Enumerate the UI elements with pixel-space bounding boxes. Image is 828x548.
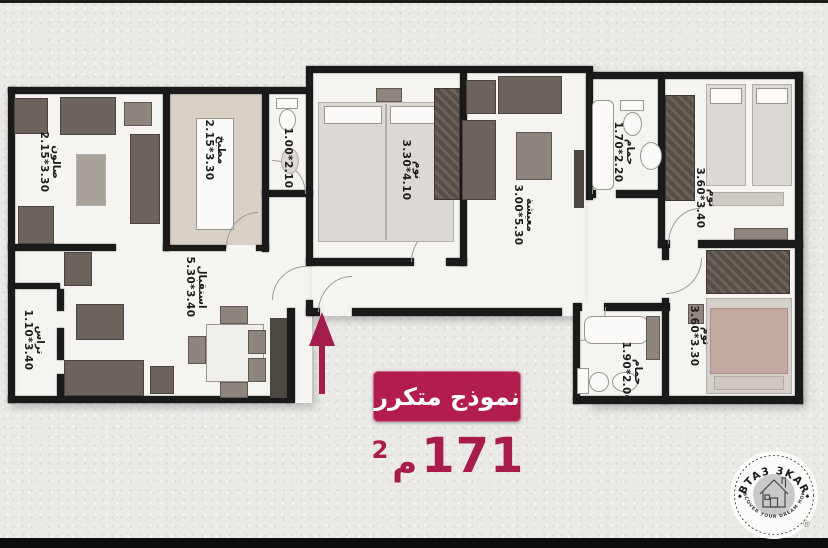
room-dims: 3.00*5.30 xyxy=(512,185,524,246)
wall xyxy=(163,94,170,251)
room-label-living: معيشة 3.00*5.30 xyxy=(512,185,536,246)
room-label-wc: 1.00*2.10 xyxy=(282,128,294,189)
furniture-tv-panel xyxy=(574,150,584,208)
wall xyxy=(57,328,64,360)
room-label-kitchen: مطبخ 2.15*3.30 xyxy=(203,120,227,181)
bathtub-icon xyxy=(592,100,614,190)
furniture-wardrobe xyxy=(706,250,790,294)
furniture-tv-cabinet xyxy=(270,318,287,398)
toilet-icon xyxy=(276,98,298,109)
wall xyxy=(306,66,313,94)
furniture-bed-split xyxy=(385,104,387,240)
wall xyxy=(573,396,803,404)
toilet-icon xyxy=(589,372,609,392)
wall xyxy=(163,245,226,251)
room-name: استقبال xyxy=(196,257,208,318)
wall xyxy=(57,289,64,311)
room-dims: 1.00*2.10 xyxy=(282,128,294,189)
furniture-wardrobe xyxy=(434,88,460,200)
room-label-terrace: تراس 1.10*3.40 xyxy=(22,310,46,371)
room-name: نوم xyxy=(412,140,424,201)
furniture-wardrobe xyxy=(665,95,695,201)
wall xyxy=(588,72,803,79)
area-text: 2 م 171 xyxy=(366,420,530,480)
furniture-ottoman xyxy=(150,366,174,394)
furniture-sofa xyxy=(130,134,160,224)
model-stamp: نموذج متكرر xyxy=(373,371,521,422)
furniture-armchair xyxy=(14,98,48,134)
room-name: تراس xyxy=(34,310,46,371)
wall xyxy=(662,298,669,404)
wall xyxy=(262,94,269,252)
room-label-bedroom3: نوم 3.60*3.30 xyxy=(688,306,712,367)
logo-diamond-right: ◆ xyxy=(806,494,810,500)
wall xyxy=(8,244,116,251)
furniture-sofa xyxy=(64,360,144,396)
room-name: صالون xyxy=(50,132,62,193)
wall xyxy=(306,258,414,266)
entrance-arrow-icon xyxy=(309,312,335,346)
furniture-sofa xyxy=(498,76,562,114)
dining-chair xyxy=(248,330,266,354)
floor-plan-image: صالون 2.15*3.30 مطبخ 2.15*3.30 1.00*2.10… xyxy=(0,0,828,548)
furniture-cabinet xyxy=(64,252,92,286)
bathtub-icon xyxy=(584,316,648,344)
top-border-strip xyxy=(0,0,828,3)
furniture-side-table xyxy=(124,102,152,126)
wall xyxy=(604,303,670,311)
wall xyxy=(698,240,803,248)
wall xyxy=(352,308,562,316)
room-dims: 1.70*2.20 xyxy=(612,122,624,183)
room-name: معيشة xyxy=(524,185,536,246)
room-dims: 3.60*3.30 xyxy=(688,306,700,367)
room-label-reception: استقبال 5.30*3.40 xyxy=(184,257,208,318)
wall xyxy=(8,87,15,403)
wall xyxy=(57,374,64,396)
dining-chair xyxy=(220,306,248,324)
wall xyxy=(287,308,295,403)
dining-chair xyxy=(220,382,248,398)
furniture-rug xyxy=(712,192,784,206)
wall xyxy=(8,87,312,94)
room-dims: 3.30*4.10 xyxy=(400,140,412,201)
sink-icon xyxy=(640,142,662,170)
room-dims: 1.90*2.00 xyxy=(620,342,632,403)
furniture-blanket xyxy=(710,308,788,374)
furniture-bed-foot xyxy=(714,376,784,390)
wall xyxy=(8,283,60,289)
room-label-bath2: حمام 1.90*2.00 xyxy=(620,342,644,403)
toilet-icon xyxy=(577,368,589,394)
furniture-cabinet xyxy=(734,228,788,240)
room-name: نوم xyxy=(700,306,712,367)
wall xyxy=(795,72,803,404)
entrance-arrow-icon xyxy=(319,344,325,394)
room-dims: 2.15*3.30 xyxy=(38,132,50,193)
wall xyxy=(312,66,593,73)
furniture-armchair xyxy=(18,206,54,244)
model-stamp-label: نموذج متكرر xyxy=(374,383,519,411)
room-label-salon: صالون 2.15*3.30 xyxy=(38,132,62,193)
room-dims: 5.30*3.40 xyxy=(184,257,196,318)
room-label-bedroom1: نوم 3.30*4.10 xyxy=(400,140,424,201)
dining-chair xyxy=(248,358,266,382)
area-unit: م xyxy=(392,446,417,480)
furniture-pillow xyxy=(756,88,788,104)
furniture-armchair xyxy=(76,304,124,340)
bottom-border-strip xyxy=(0,538,828,548)
furniture-pillow xyxy=(710,88,742,104)
room-name: حمام xyxy=(624,122,636,183)
room-dims: 3.60*3.40 xyxy=(694,168,706,229)
furniture-coffee-table xyxy=(76,154,106,206)
furniture-vanity xyxy=(646,316,660,360)
dining-chair xyxy=(188,336,206,364)
room-dims: 2.15*3.30 xyxy=(203,120,215,181)
room-name: نوم xyxy=(706,168,718,229)
toilet-icon xyxy=(620,100,644,111)
room-dims: 1.10*3.40 xyxy=(22,310,34,371)
room-name: مطبخ xyxy=(215,120,227,181)
wall xyxy=(306,94,313,266)
furniture-table xyxy=(516,132,552,180)
room-label-bath1: حمام 1.70*2.20 xyxy=(612,122,636,183)
room-label-bedroom2: نوم 3.60*3.40 xyxy=(694,168,718,229)
logo-diamond-left: ◆ xyxy=(738,494,742,500)
registered-mark: ® xyxy=(802,520,811,530)
furniture-sofa xyxy=(60,97,116,135)
area-exponent: 2 xyxy=(372,436,389,464)
furniture-pillow xyxy=(324,106,382,124)
furniture-nightstand xyxy=(376,88,402,102)
area-value: 171 xyxy=(421,432,524,480)
furniture-sofa xyxy=(462,120,496,200)
furniture-armchair xyxy=(466,80,496,114)
room-name: حمام xyxy=(632,342,644,403)
